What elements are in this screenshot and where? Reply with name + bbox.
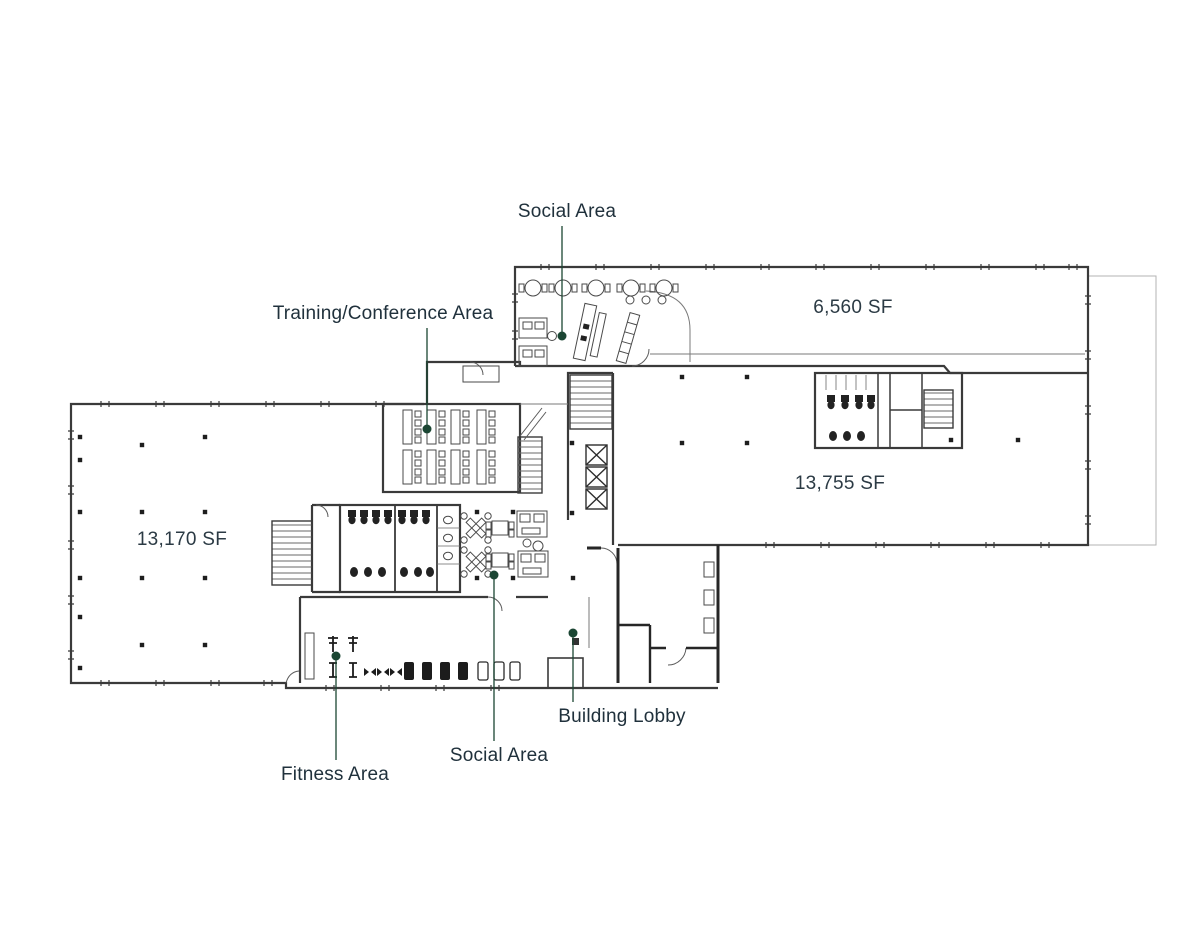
label-training-conference-area: Training/Conference Area — [273, 303, 494, 325]
structural-columns — [78, 375, 1020, 670]
area-size-right-wing-main: 13,755 SF — [795, 473, 885, 495]
social-area-top-furniture — [519, 280, 678, 366]
door-arcs — [286, 349, 686, 683]
central-restroom-core — [348, 505, 460, 592]
label-social-area-bottom: Social Area — [450, 745, 548, 767]
label-fitness-area: Fitness Area — [281, 764, 389, 786]
social-area-bottom-furniture — [460, 511, 548, 578]
elevator-bank — [586, 445, 607, 509]
area-size-right-wing-top: 6,560 SF — [813, 297, 893, 319]
training-tables — [403, 366, 499, 484]
floor-plan-page: Social Area Training/Conference Area Bui… — [0, 0, 1200, 927]
right-wing-restrooms — [826, 373, 922, 448]
floor-plan-drawing — [0, 0, 1200, 927]
leader-dots — [332, 332, 578, 661]
label-social-area-top: Social Area — [518, 201, 616, 223]
label-building-lobby: Building Lobby — [558, 706, 685, 728]
expansion-outline — [1088, 276, 1156, 545]
area-size-left-wing: 13,170 SF — [137, 529, 227, 551]
